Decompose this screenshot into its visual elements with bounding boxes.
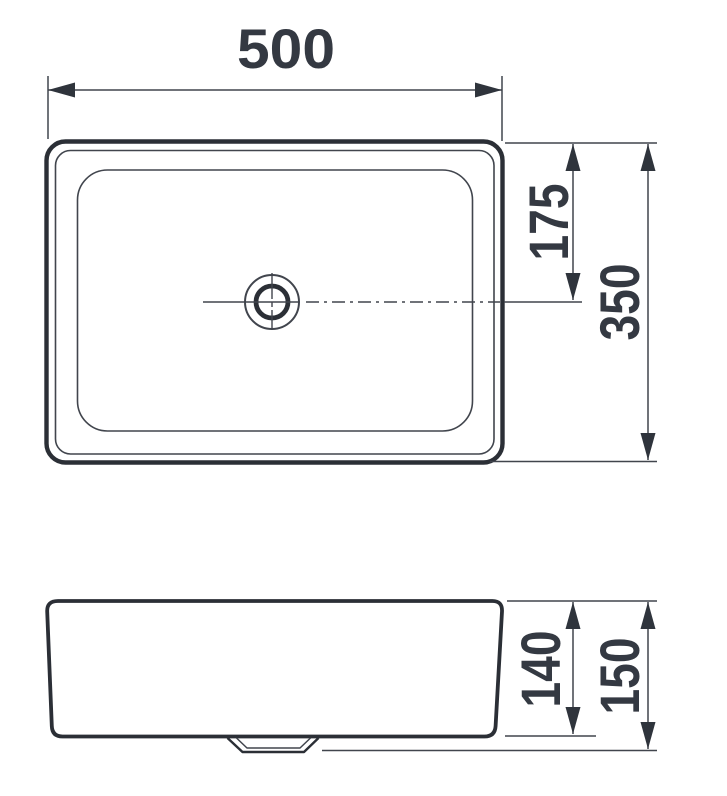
dim-depth-label: 350 [588,264,651,341]
dim-overall-height-label: 150 [588,638,651,715]
dim-width-arrow-left [48,83,75,98]
plan-view [47,142,503,463]
basin-profile-outline [47,601,502,737]
washbasin-drawing-canvas: 500 175 350 [0,0,727,796]
dim-overall-height-arrow-bottom [641,722,656,749]
drain-outlet-inner [237,738,311,748]
basin-inner-bowl [78,170,473,431]
dim-body-height-arrow-top [566,602,581,629]
dim-elevation: 140 150 [322,601,657,751]
dim-drain-offset-label: 175 [517,184,580,261]
dim-drain-offset-arrow-bottom [566,273,581,300]
dim-width: 500 [48,17,502,141]
dim-right-side: 175 350 [490,143,657,462]
technical-drawing-page: 500 175 350 [0,0,727,796]
dim-depth-arrow-top [641,144,656,171]
dim-width-arrow-right [475,83,502,98]
dim-depth-arrow-bottom [641,433,656,460]
elevation-view [47,601,502,752]
dim-body-height-arrow-bottom [566,707,581,734]
drain-outlet-outer [228,738,319,752]
dim-body-height-label: 140 [509,631,572,708]
dim-drain-offset-arrow-top [566,144,581,171]
dim-overall-height-arrow-top [641,602,656,629]
dim-width-label: 500 [237,17,335,80]
